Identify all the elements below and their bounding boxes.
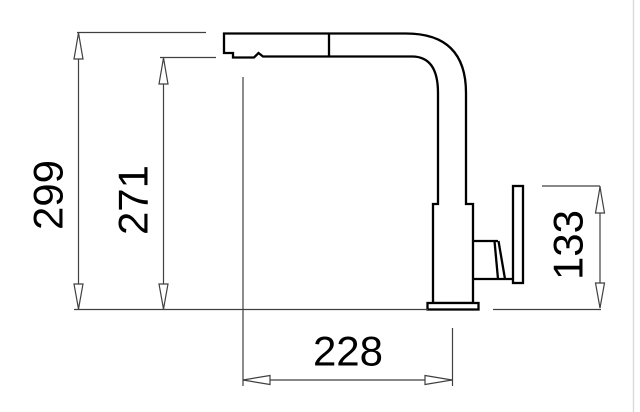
dimension-spout-outlet-height (159, 58, 216, 310)
arrow-up-299 (74, 33, 83, 59)
arrow-up-133 (596, 187, 605, 213)
arrow-down-299 (74, 284, 83, 309)
arrow-right-228 (425, 376, 452, 385)
arrow-down-133 (596, 283, 605, 308)
handle-joint-left-line (495, 241, 499, 279)
drawing-page: 299 271 133 228 (0, 0, 640, 412)
dimension-label-spout-outlet-height: 271 (110, 165, 157, 235)
faucet-outline-group (224, 34, 523, 310)
faucet-dimension-drawing: 299 271 133 228 (0, 0, 640, 412)
dimension-label-handle-top-height: 133 (545, 210, 592, 280)
dimension-label-total-height: 299 (25, 160, 72, 230)
arrow-up-271 (159, 58, 168, 84)
handle-joint-right-line (499, 241, 506, 279)
dimension-label-spout-reach: 228 (313, 328, 383, 375)
arrow-down-271 (159, 284, 168, 309)
faucet-body-outline (224, 34, 473, 304)
arrow-left-228 (243, 376, 270, 385)
faucet-lever-handle (513, 186, 523, 283)
faucet-base-plate (428, 303, 479, 310)
